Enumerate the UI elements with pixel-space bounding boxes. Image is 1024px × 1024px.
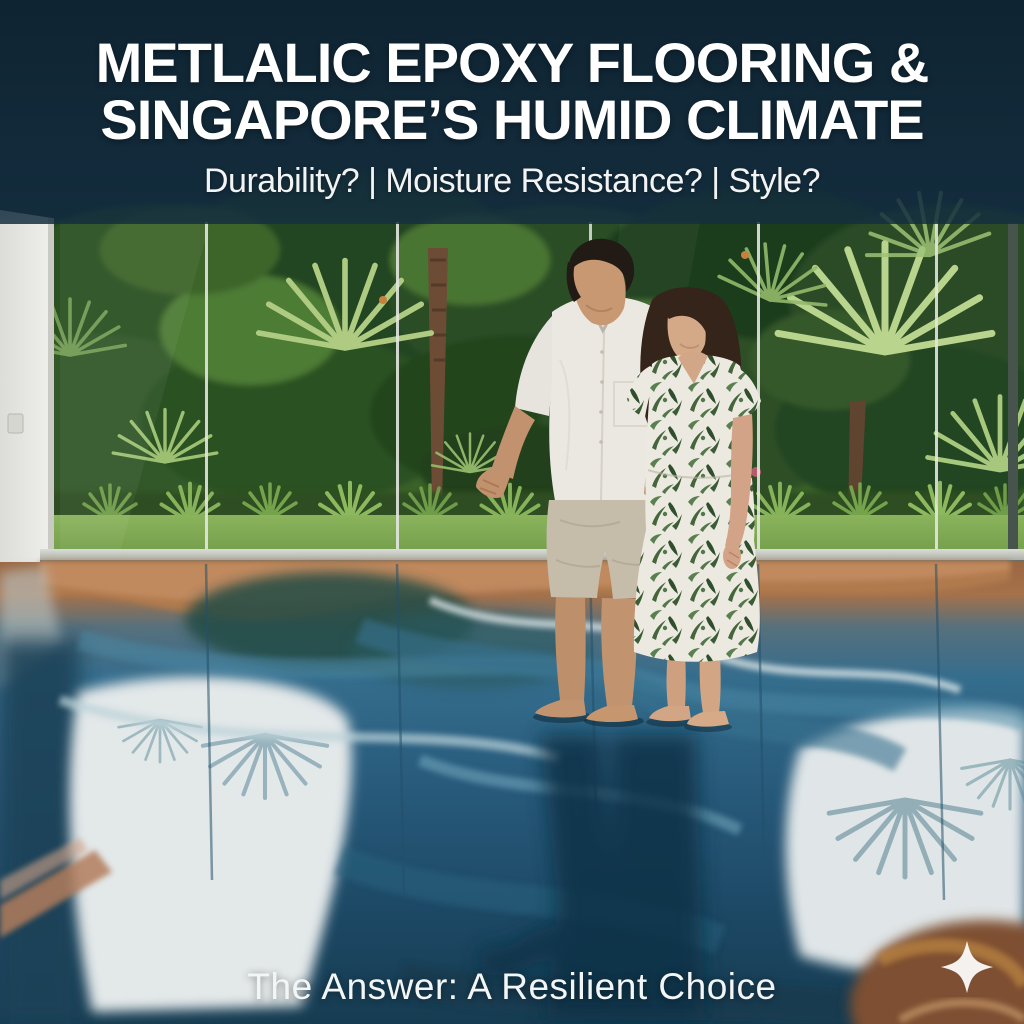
header-banner: METLALIC EPOXY FLOORING & SINGAPORE’S HU… <box>0 0 1024 224</box>
lawn <box>40 515 1024 551</box>
page-title-line1: METLALIC EPOXY FLOORING & <box>96 34 929 91</box>
page-subtitle: Durability? | Moisture Resistance? | Sty… <box>204 162 820 201</box>
page-title-line2: SINGAPORE’S HUMID CLIMATE <box>100 91 923 148</box>
epoxy-floor <box>0 562 1024 1024</box>
sparkle-icon <box>936 936 998 998</box>
poster: METLALIC EPOXY FLOORING & SINGAPORE’S HU… <box>0 0 1024 1024</box>
bottom-caption: The Answer: A Resilient Choice <box>0 966 1024 1008</box>
power-outlet <box>8 414 23 433</box>
left-wall <box>0 210 54 575</box>
